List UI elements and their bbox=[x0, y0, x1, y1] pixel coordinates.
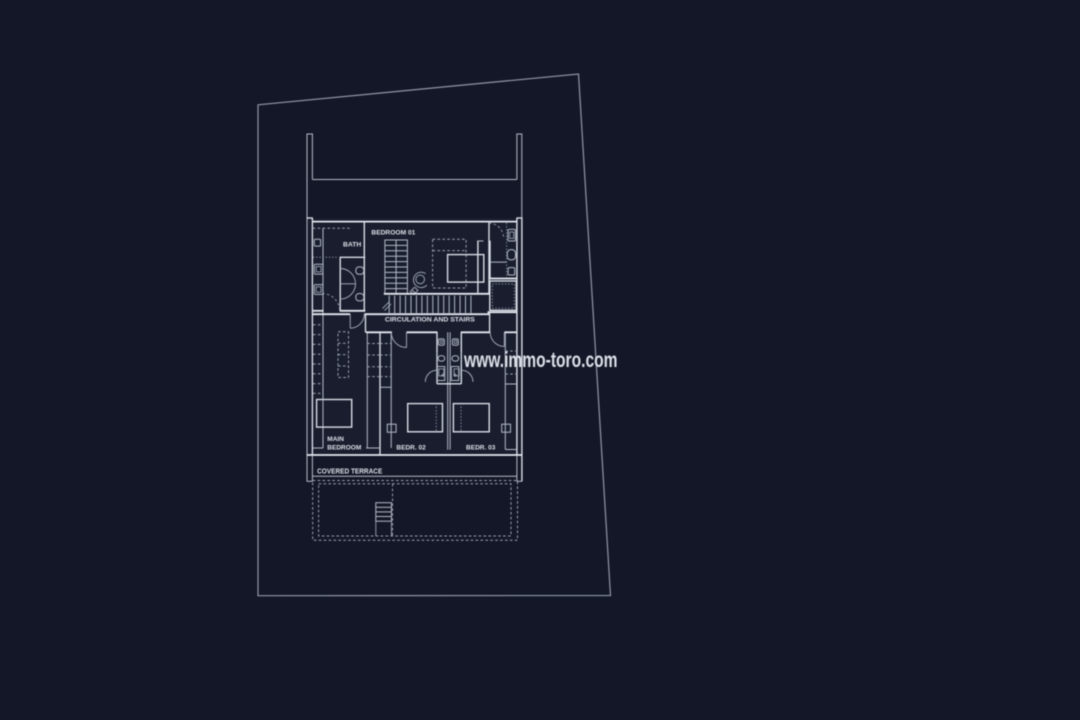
svg-text:BEDR. 02: BEDR. 02 bbox=[396, 444, 426, 451]
svg-text:MAIN: MAIN bbox=[327, 436, 344, 443]
svg-text:COVERED TERRACE: COVERED TERRACE bbox=[317, 468, 382, 475]
svg-text:BEDROOM 01: BEDROOM 01 bbox=[371, 229, 415, 236]
svg-text:BEDROOM: BEDROOM bbox=[327, 444, 361, 451]
svg-text:BEDR. 03: BEDR. 03 bbox=[466, 444, 496, 451]
svg-text:www.immo-toro.com: www.immo-toro.com bbox=[463, 349, 617, 372]
svg-text:BATH: BATH bbox=[343, 241, 361, 248]
svg-text:CIRCULATION AND STAIRS: CIRCULATION AND STAIRS bbox=[385, 317, 476, 324]
